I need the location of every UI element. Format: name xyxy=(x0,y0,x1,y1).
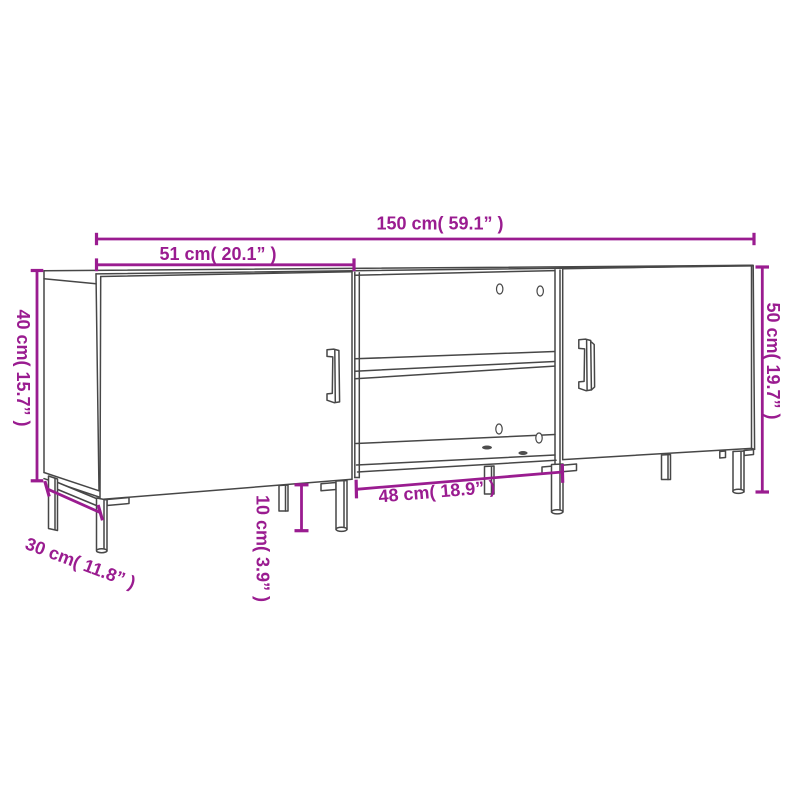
svg-text:150 cm( 59.1” ): 150 cm( 59.1” ) xyxy=(376,214,503,234)
svg-text:51 cm( 20.1” ): 51 cm( 20.1” ) xyxy=(159,244,276,264)
svg-text:50 cm( 19.7” ): 50 cm( 19.7” ) xyxy=(763,302,783,419)
svg-text:10 cm( 3.9” ): 10 cm( 3.9” ) xyxy=(253,495,273,602)
svg-text:40 cm( 15.7” ): 40 cm( 15.7” ) xyxy=(13,309,33,426)
